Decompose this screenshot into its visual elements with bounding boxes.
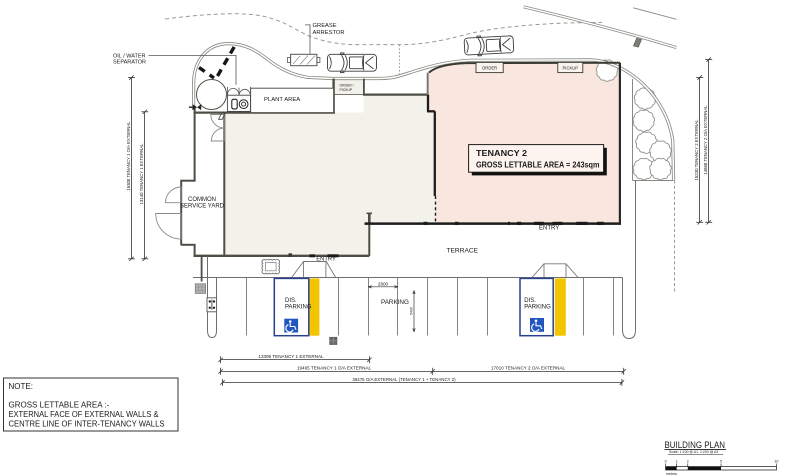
- svg-text:2600: 2600: [378, 281, 389, 286]
- svg-text:DIS.: DIS.: [524, 298, 536, 304]
- svg-text:CENTRE LINE OF INTER-TENANCY W: CENTRE LINE OF INTER-TENANCY WALLS: [9, 420, 165, 429]
- svg-text:GREASE: GREASE: [313, 23, 337, 29]
- svg-text:DIS.: DIS.: [285, 298, 297, 304]
- svg-text:19465 TENANCY 1 O/A EXTERNAL: 19465 TENANCY 1 O/A EXTERNAL: [297, 366, 372, 371]
- svg-text:17010 TENANCY 2 O/A EXTERNAL: 17010 TENANCY 2 O/A EXTERNAL: [491, 366, 566, 371]
- svg-text:Scale: 1:100 @ A1, 1:200 @ A3: Scale: 1:100 @ A1, 1:200 @ A3: [669, 450, 718, 454]
- svg-text:PLANT AREA: PLANT AREA: [264, 97, 300, 103]
- svg-text:13140 TENANCY 1 EXTERNAL: 13140 TENANCY 1 EXTERNAL: [139, 143, 144, 205]
- svg-text:EXTERNAL FACE OF EXTERNAL WALL: EXTERNAL FACE OF EXTERNAL WALLS &: [9, 410, 160, 419]
- svg-text:ORDER: ORDER: [482, 65, 497, 70]
- svg-text:5400: 5400: [410, 307, 414, 315]
- svg-text:16300 TENANCY 1 O/A EXTERNAL: 16300 TENANCY 1 O/A EXTERNAL: [126, 121, 131, 191]
- svg-text:PICKUP: PICKUP: [563, 65, 579, 70]
- svg-text:NOTE:: NOTE:: [9, 382, 33, 391]
- svg-text:PICKUP: PICKUP: [340, 88, 353, 92]
- svg-text:13395 TENANCY 1 EXTERNAL: 13395 TENANCY 1 EXTERNAL: [258, 354, 324, 359]
- svg-text:15230 TENANCY 2 EXTERNAL: 15230 TENANCY 2 EXTERNAL: [694, 119, 699, 181]
- svg-text:5: 5: [720, 460, 722, 464]
- svg-text:14860 TENANCY 2 O/A EXTERNAL: 14860 TENANCY 2 O/A EXTERNAL: [703, 105, 708, 175]
- svg-text:COMMON: COMMON: [188, 197, 216, 203]
- svg-text:10: 10: [774, 460, 778, 464]
- svg-text:SEPARATOR: SEPARATOR: [113, 60, 146, 66]
- svg-text:ARRESTOR: ARRESTOR: [313, 30, 345, 36]
- svg-text:TERRACE: TERRACE: [447, 247, 479, 254]
- svg-text:PARKING: PARKING: [285, 305, 312, 311]
- svg-text:ENTRY: ENTRY: [539, 225, 559, 231]
- svg-text:2: 2: [687, 460, 689, 464]
- svg-text:PARKING: PARKING: [381, 299, 409, 306]
- svg-text:TENANCY 2: TENANCY 2: [476, 149, 527, 158]
- svg-text:OIL / WATER: OIL / WATER: [113, 53, 146, 59]
- svg-text:SERVICE YARD: SERVICE YARD: [180, 203, 225, 209]
- svg-text:ORDER /: ORDER /: [340, 84, 354, 88]
- svg-text:PARKING: PARKING: [524, 305, 551, 311]
- svg-text:metres: metres: [666, 472, 677, 476]
- svg-text:GROSS LETTABLE AREA :-: GROSS LETTABLE AREA :-: [9, 401, 110, 410]
- svg-text:GROSS LETTABLE AREA = 243sqm: GROSS LETTABLE AREA = 243sqm: [476, 161, 600, 170]
- svg-text:0: 0: [665, 460, 667, 464]
- svg-text:BUILDING PLAN: BUILDING PLAN: [665, 439, 726, 450]
- svg-text:36475 O/A EXTERNAL (TENANCY 1: 36475 O/A EXTERNAL (TENANCY 1 + TENANCY …: [352, 377, 456, 382]
- svg-text:1: 1: [676, 460, 678, 464]
